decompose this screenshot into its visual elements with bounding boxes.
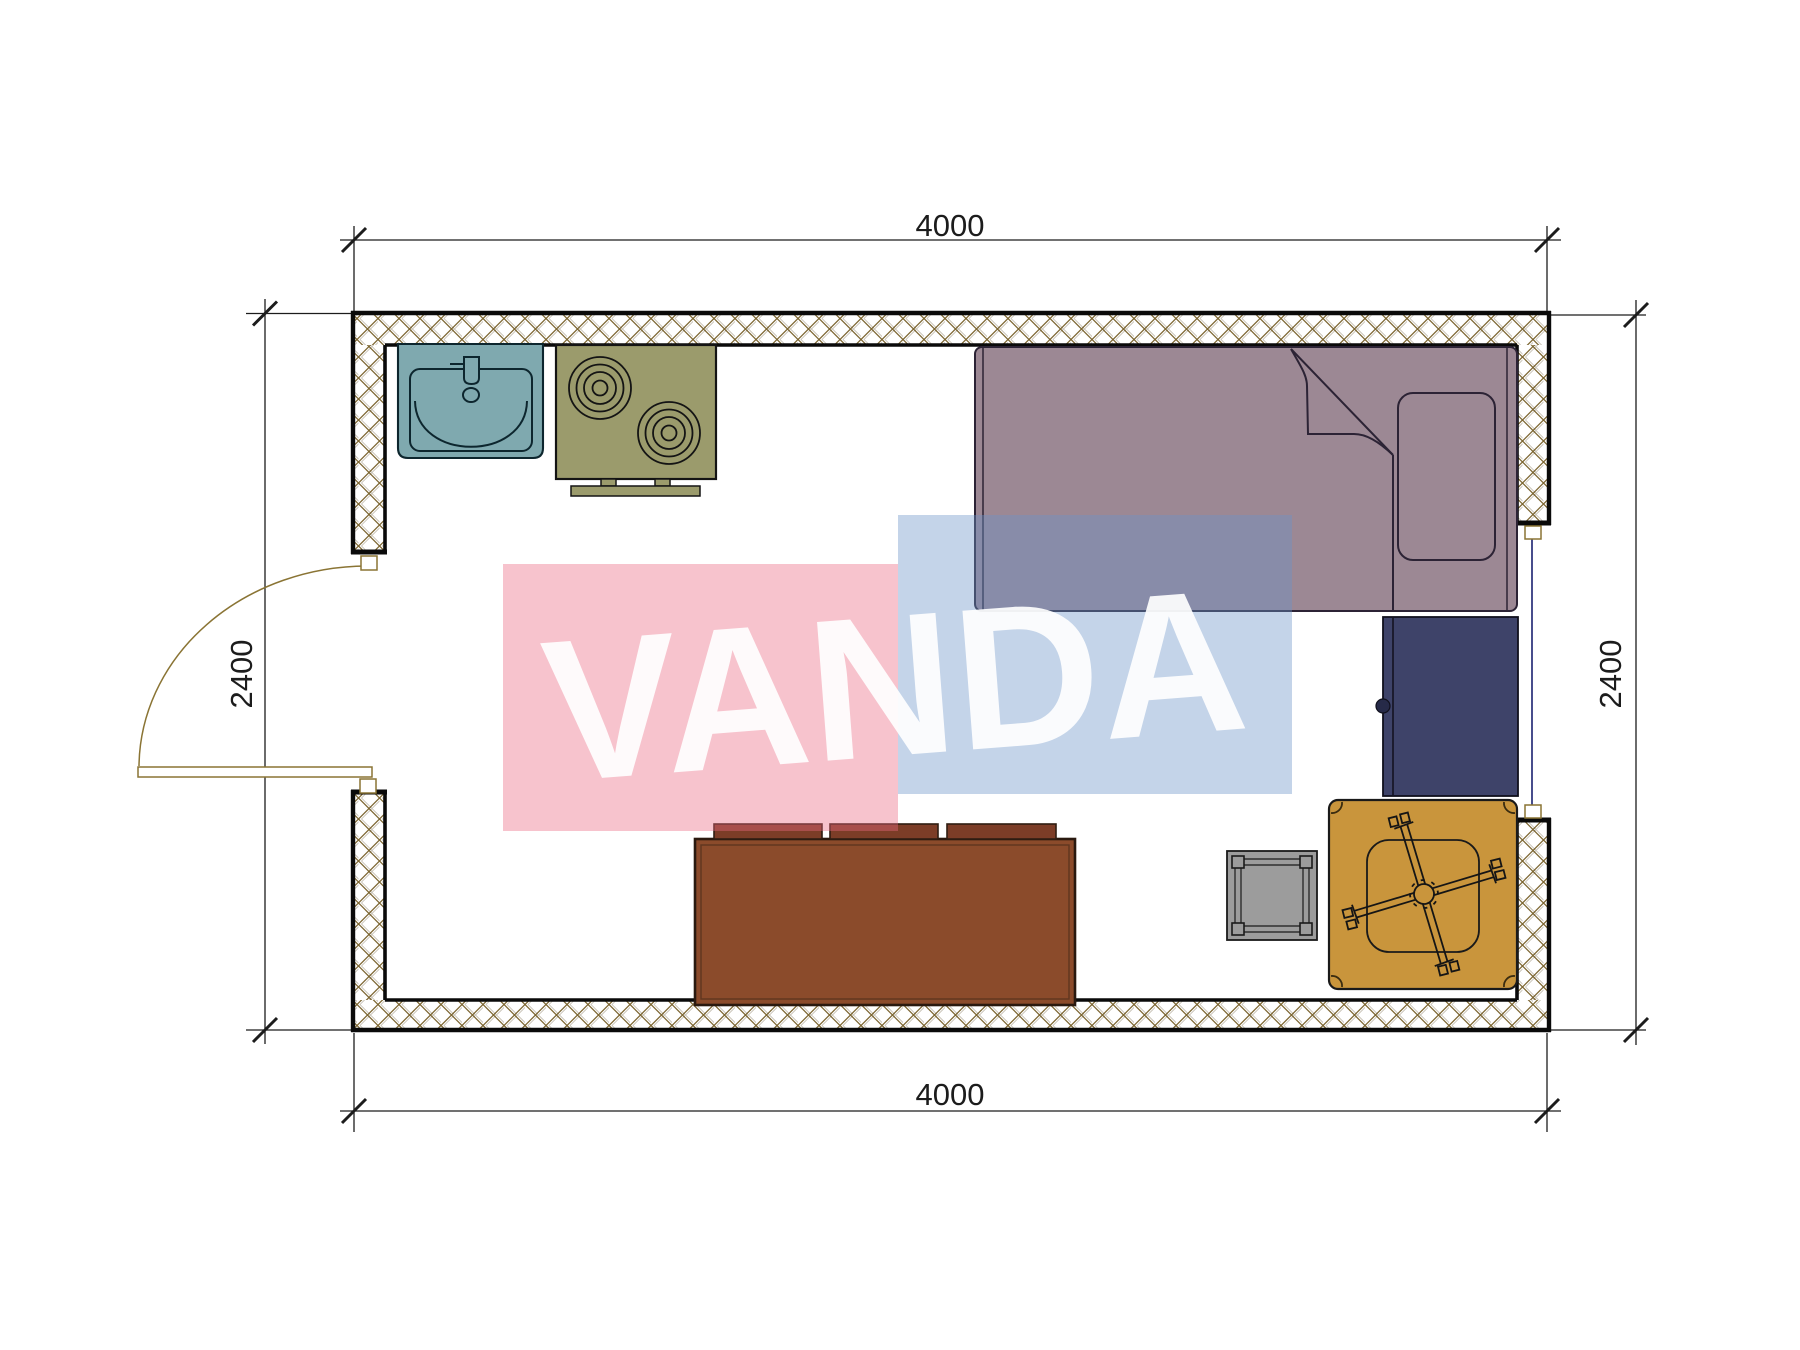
svg-text:2400: 2400 bbox=[224, 640, 259, 709]
svg-text:4000: 4000 bbox=[916, 208, 985, 243]
svg-text:4000: 4000 bbox=[916, 1077, 985, 1112]
svg-text:2400: 2400 bbox=[1593, 640, 1628, 709]
